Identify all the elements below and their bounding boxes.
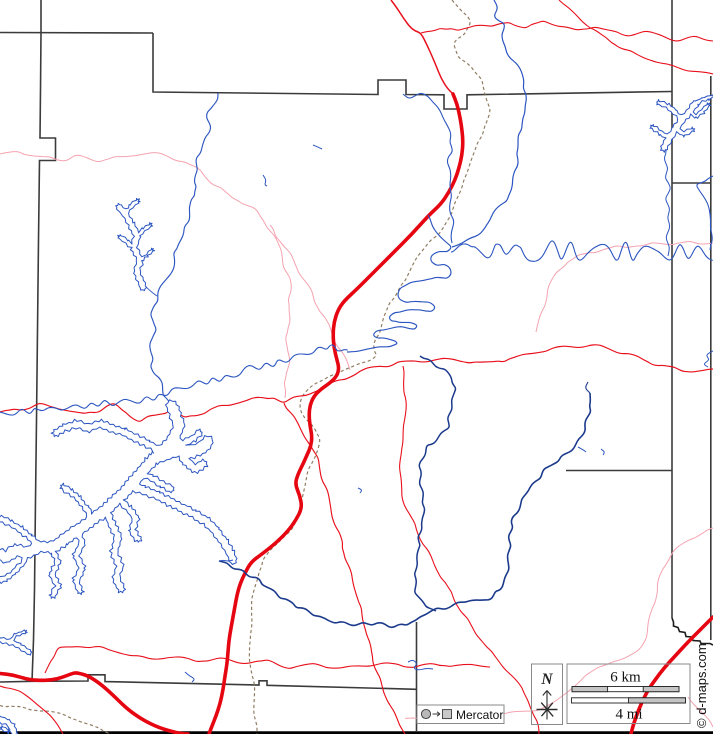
- svg-text:6 km: 6 km: [610, 670, 641, 686]
- svg-text:Mercator: Mercator: [456, 708, 503, 722]
- svg-text:© d-maps.com: © d-maps.com: [694, 643, 709, 728]
- svg-text:4 mi: 4 mi: [615, 707, 642, 723]
- svg-text:N: N: [540, 671, 553, 688]
